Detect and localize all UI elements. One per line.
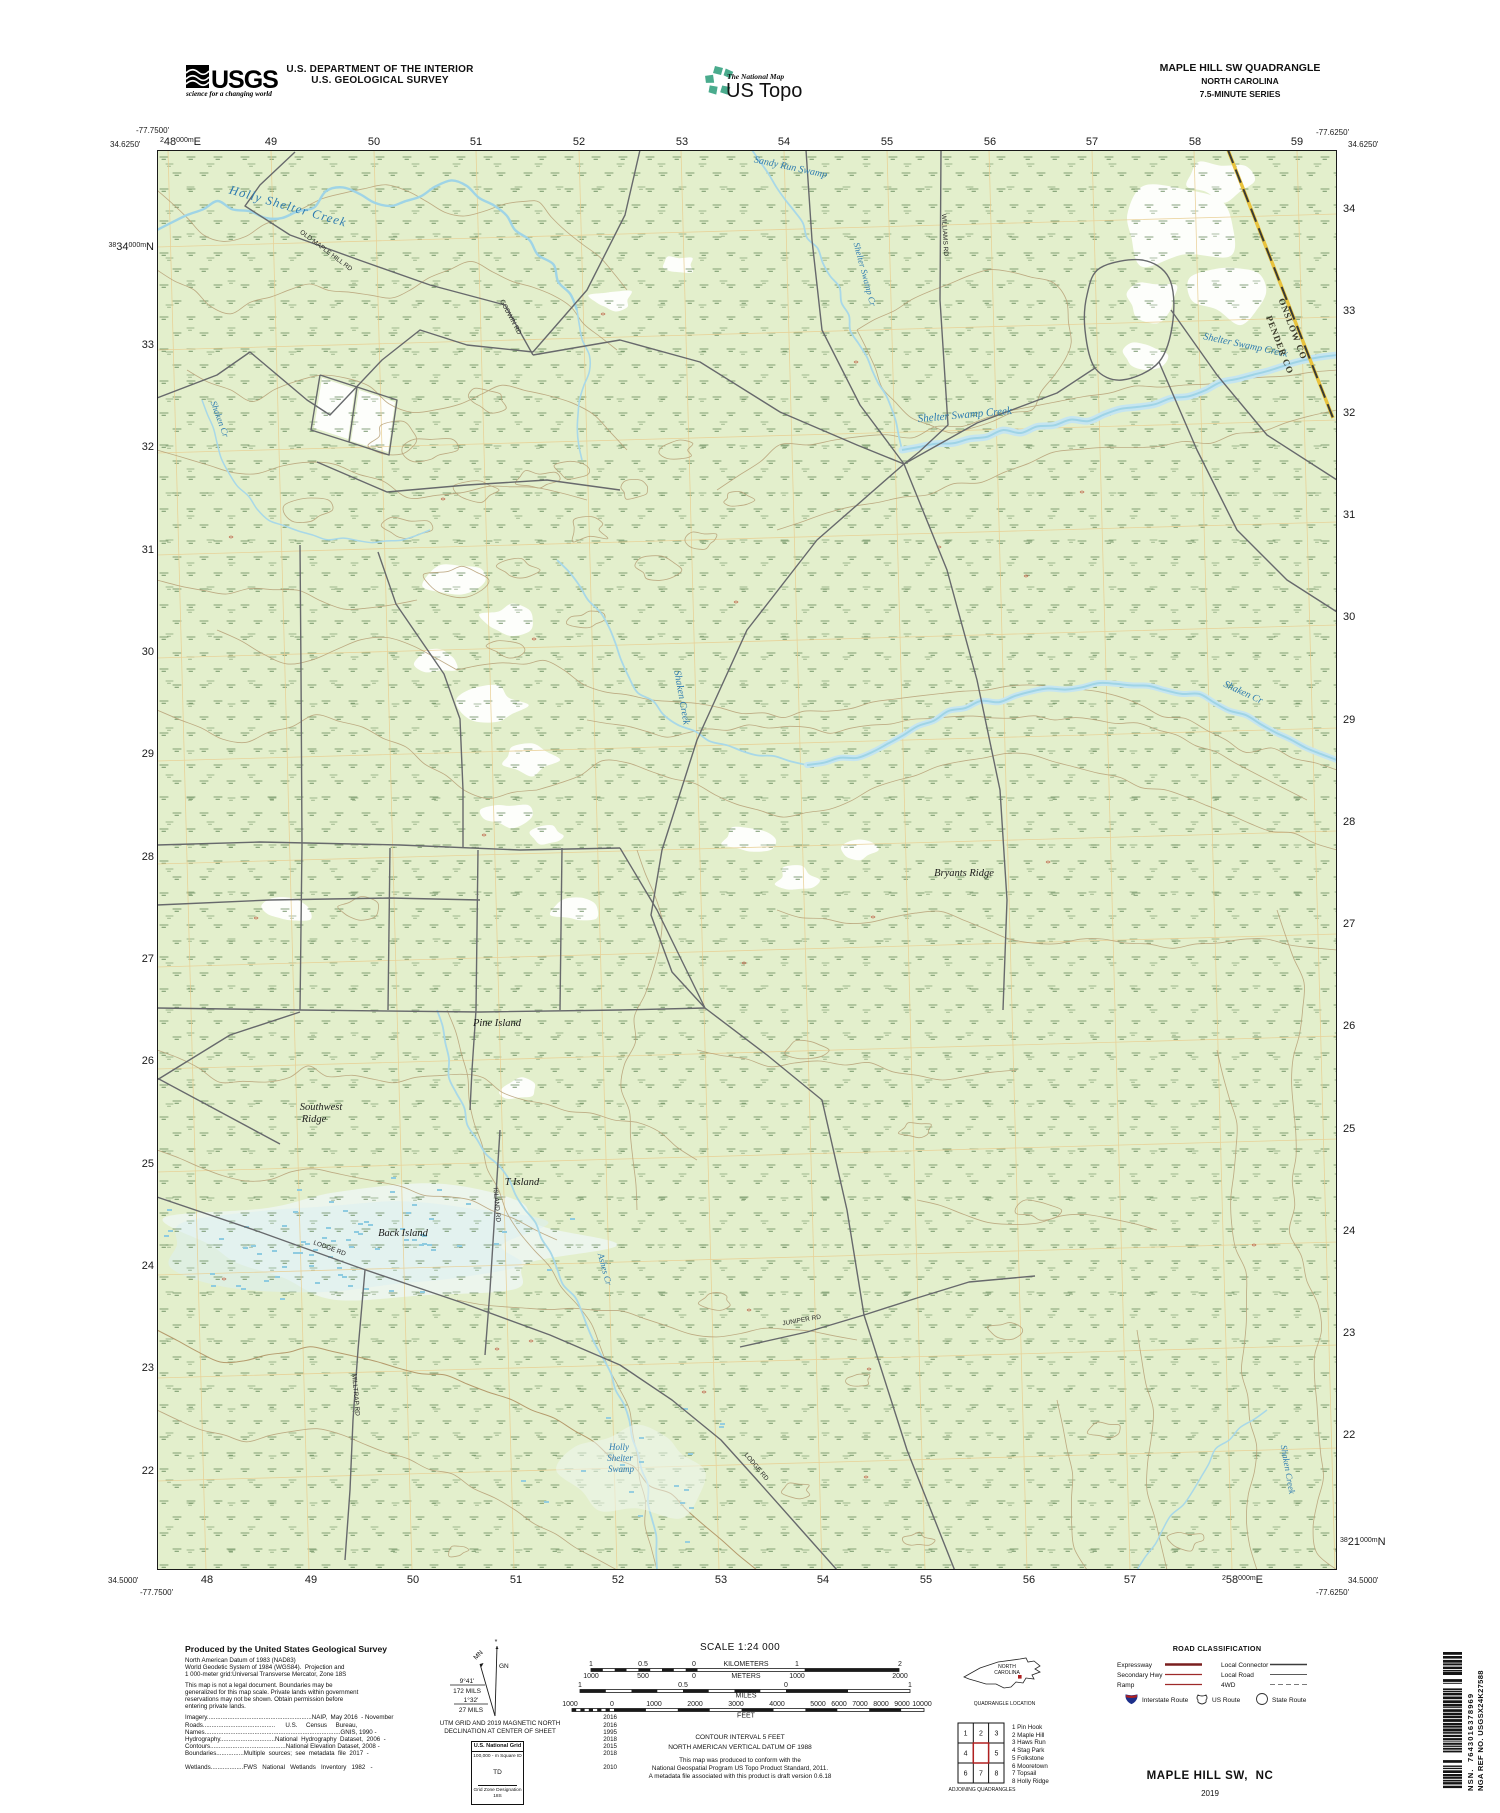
svg-text:4WD: 4WD: [1221, 1682, 1236, 1689]
svg-text:1000: 1000: [646, 1701, 662, 1708]
svg-text:27 MILS: 27 MILS: [459, 1707, 484, 1714]
svg-text:8000: 8000: [873, 1701, 889, 1708]
svg-text:KILOMETERS: KILOMETERS: [723, 1661, 768, 1668]
svg-text:4: 4: [964, 1751, 968, 1758]
svg-text:Local Road: Local Road: [1221, 1672, 1254, 1679]
svg-text:GN: GN: [499, 1663, 509, 1670]
svg-text:Shelter: Shelter: [607, 1453, 633, 1463]
svg-text:Expressway: Expressway: [1117, 1662, 1153, 1669]
svg-text:State Route: State Route: [1272, 1697, 1307, 1704]
svg-text:500: 500: [637, 1673, 649, 1680]
svg-text:Interstate Route: Interstate Route: [1142, 1697, 1189, 1704]
svg-text:US Route: US Route: [1212, 1697, 1241, 1704]
svg-text:US Topo: US Topo: [726, 80, 802, 102]
svg-text:7: 7: [979, 1771, 983, 1778]
svg-text:2: 2: [898, 1661, 902, 1668]
svg-text:NGA REF NO. USGSX24K27588: NGA REF NO. USGSX24K27588: [1476, 1670, 1485, 1791]
svg-text:0.5: 0.5: [638, 1661, 648, 1668]
svg-text:3: 3: [994, 1731, 998, 1738]
svg-text:0: 0: [692, 1673, 696, 1680]
svg-text:2000: 2000: [892, 1673, 908, 1680]
svg-text:1000: 1000: [583, 1673, 599, 1680]
svg-text:Secondary Hwy: Secondary Hwy: [1117, 1672, 1163, 1679]
svg-text:NSN. 7643016378969: NSN. 7643016378969: [1466, 1693, 1475, 1791]
svg-text:2000: 2000: [687, 1701, 703, 1708]
svg-text:MN: MN: [472, 1649, 484, 1661]
svg-text:1: 1: [795, 1661, 799, 1668]
svg-text:3000: 3000: [728, 1701, 744, 1708]
svg-text:CAROLINA: CAROLINA: [994, 1670, 1020, 1676]
svg-text:Ridge: Ridge: [301, 1114, 327, 1125]
svg-text:Swamp: Swamp: [608, 1464, 635, 1474]
svg-text:Bryants Ridge: Bryants Ridge: [934, 868, 994, 879]
svg-text:0.5: 0.5: [678, 1682, 688, 1689]
svg-text:4000: 4000: [769, 1701, 785, 1708]
svg-text:1000: 1000: [562, 1701, 578, 1708]
svg-text:1°32': 1°32': [464, 1696, 479, 1704]
svg-text:1000: 1000: [789, 1673, 805, 1680]
svg-text:0: 0: [692, 1661, 696, 1668]
svg-text:Holly: Holly: [608, 1442, 629, 1452]
svg-text:MILES: MILES: [735, 1693, 756, 1700]
svg-text:1: 1: [908, 1682, 912, 1689]
svg-text:1: 1: [578, 1682, 582, 1689]
svg-text:1: 1: [589, 1661, 593, 1668]
svg-text:*: *: [495, 1639, 498, 1646]
svg-text:7000: 7000: [852, 1701, 868, 1708]
svg-text:METERS: METERS: [731, 1673, 761, 1680]
svg-text:9000: 9000: [894, 1701, 910, 1708]
svg-text:5000: 5000: [810, 1701, 826, 1708]
svg-text:Pine Island: Pine Island: [472, 1018, 522, 1029]
svg-text:6: 6: [964, 1771, 968, 1778]
svg-text:Local Connector: Local Connector: [1221, 1662, 1269, 1669]
svg-text:9°41': 9°41': [460, 1677, 475, 1685]
svg-text:FEET: FEET: [737, 1713, 756, 1720]
svg-text:0: 0: [784, 1682, 788, 1689]
svg-text:0: 0: [610, 1701, 614, 1708]
svg-text:10000: 10000: [912, 1701, 932, 1708]
svg-text:8: 8: [994, 1771, 998, 1778]
svg-text:1: 1: [964, 1731, 968, 1738]
svg-text:172 MILS: 172 MILS: [453, 1688, 481, 1695]
svg-text:2: 2: [979, 1731, 983, 1738]
svg-text:6000: 6000: [831, 1701, 847, 1708]
svg-text:5: 5: [994, 1751, 998, 1758]
svg-text:Southwest: Southwest: [300, 1102, 344, 1113]
svg-text:science for a changing world: science for a changing world: [185, 90, 272, 98]
svg-text:Ramp: Ramp: [1117, 1682, 1135, 1689]
svg-text:Back Island: Back Island: [378, 1228, 429, 1239]
svg-text:T Island: T Island: [505, 1177, 540, 1188]
